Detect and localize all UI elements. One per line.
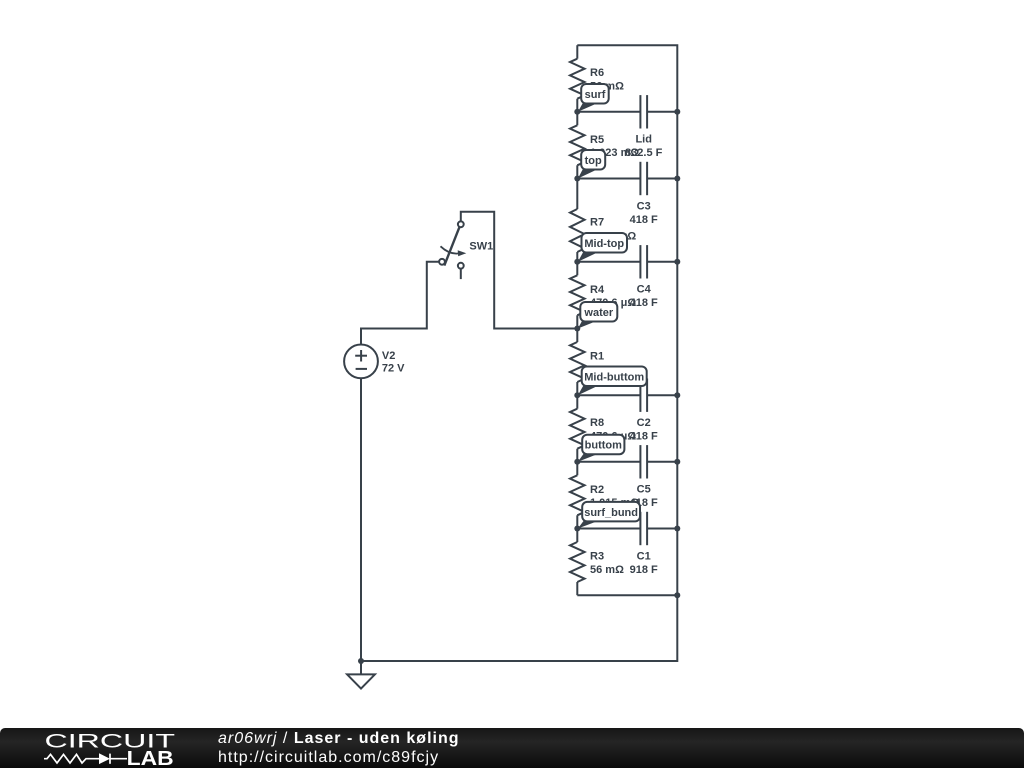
svg-text:418 F: 418 F	[630, 297, 658, 309]
svg-text:418 F: 418 F	[630, 431, 658, 443]
svg-text:Mid-top: Mid-top	[584, 238, 624, 250]
svg-text:surf_bund: surf_bund	[584, 507, 638, 519]
svg-text:56 mΩ: 56 mΩ	[590, 564, 624, 576]
svg-text:832.5 F: 832.5 F	[625, 147, 663, 159]
svg-text:LAB: LAB	[127, 748, 174, 768]
svg-text:Mid-buttom: Mid-buttom	[584, 372, 644, 384]
svg-text:R4: R4	[590, 284, 605, 296]
svg-text:top: top	[585, 155, 602, 167]
svg-text:R5: R5	[590, 134, 604, 146]
svg-text:C3: C3	[637, 200, 651, 212]
svg-text:Lid: Lid	[635, 134, 652, 146]
svg-text:C4: C4	[637, 284, 652, 296]
svg-text:418 F: 418 F	[630, 214, 658, 226]
svg-text:R8: R8	[590, 417, 604, 429]
svg-text:918 F: 918 F	[630, 564, 658, 576]
svg-text:R6: R6	[590, 67, 604, 79]
svg-text:R7: R7	[590, 217, 604, 229]
svg-text:V2: V2	[382, 350, 395, 362]
svg-text:C1: C1	[637, 550, 651, 562]
svg-text:72 V: 72 V	[382, 363, 405, 375]
svg-text:buttom: buttom	[585, 440, 622, 452]
svg-text:surf: surf	[585, 89, 606, 101]
svg-text:R3: R3	[590, 551, 604, 563]
svg-text:SW1: SW1	[469, 241, 493, 253]
svg-text:water: water	[583, 307, 613, 319]
svg-text:R1: R1	[590, 351, 604, 363]
svg-text:C5: C5	[637, 484, 651, 496]
svg-text:C2: C2	[637, 417, 651, 429]
svg-text:R2: R2	[590, 484, 604, 496]
